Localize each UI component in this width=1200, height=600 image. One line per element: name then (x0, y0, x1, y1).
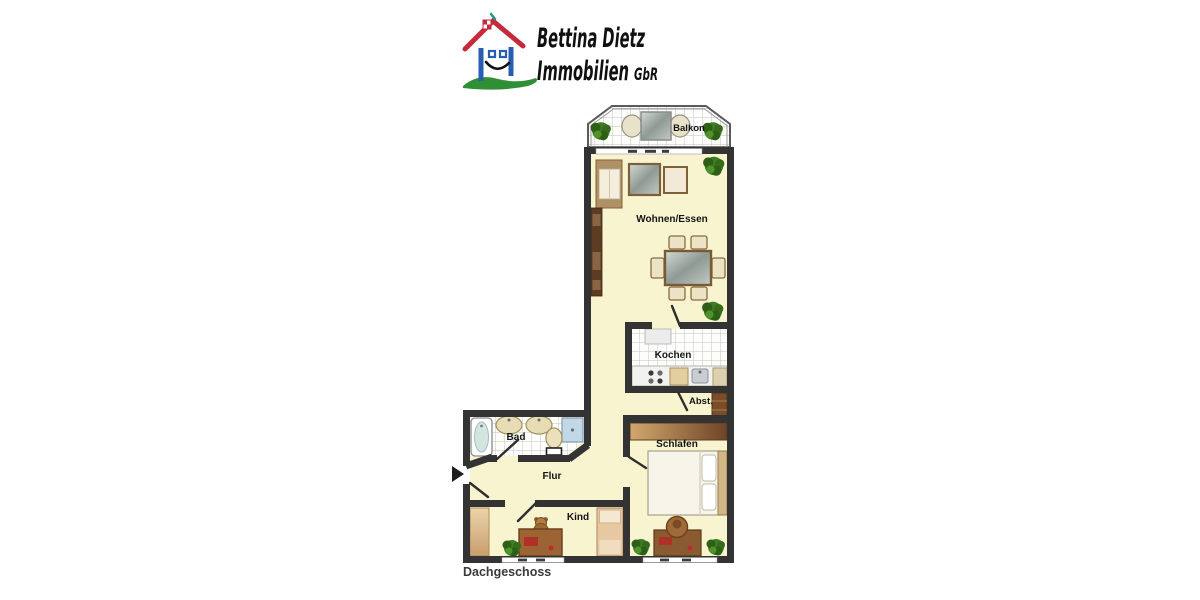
kids-wardrobe (470, 508, 489, 556)
kitchen-unit (713, 368, 727, 386)
balcony-table (641, 112, 671, 140)
dining-chair (691, 287, 707, 300)
shower (562, 418, 583, 442)
kitchen-cabinet (645, 329, 671, 344)
kids-bed (597, 508, 623, 556)
toy-chest (519, 529, 562, 556)
room-label-schlafen: Schlafen (656, 439, 698, 450)
floor-title: Dachgeschoss (463, 565, 551, 579)
pillow (702, 484, 716, 510)
dining-chair (669, 236, 685, 249)
room-label-wohnen-essen: Wohnen/Essen (636, 214, 708, 225)
room-label-kind: Kind (567, 512, 589, 523)
logo-line1: Bettina Dietz (537, 23, 645, 54)
double-bed (648, 451, 727, 515)
room-label-bad: Bad (507, 432, 526, 443)
dining-chair (691, 236, 707, 249)
logo-line2: Immobilien (537, 56, 629, 87)
window (502, 558, 564, 563)
pillow (702, 455, 716, 481)
dining-chair (651, 258, 664, 278)
headboard (718, 451, 727, 515)
floorplan-canvas: Bettina Dietz Immobilien GbR Balkon (0, 0, 1200, 600)
shelf-unit (591, 208, 602, 296)
entrance-arrow-icon (452, 466, 464, 482)
storage-shelf (712, 393, 727, 418)
dining-table (665, 251, 711, 285)
room-label-abstellraum: Abst. (689, 396, 713, 407)
room-label-balkon: Balkon (673, 123, 705, 134)
kitchen-unit (670, 368, 688, 385)
balcony: Balkon (588, 106, 730, 147)
coffee-table (629, 164, 660, 195)
room-label-kochen: Kochen (655, 350, 692, 361)
balcony-chair (622, 115, 642, 137)
sofa (596, 160, 622, 208)
dining-chair (669, 287, 685, 300)
sink-icon (692, 369, 708, 383)
window (643, 558, 717, 563)
toilet (546, 428, 562, 455)
chimney-icon (483, 20, 491, 29)
dining-chair (712, 258, 725, 278)
logo: Bettina Dietz Immobilien GbR (463, 14, 658, 90)
window (596, 149, 702, 155)
logo-house-icon (463, 14, 537, 90)
room-label-flur: Flur (543, 471, 562, 482)
svg-text:Immobilien GbR: Immobilien GbR (537, 56, 658, 87)
bathtub (471, 418, 492, 456)
wardrobe (630, 423, 727, 440)
side-table (664, 167, 687, 193)
logo-suffix: GbR (634, 65, 658, 85)
floorplan-page: Bettina Dietz Immobilien GbR Balkon (0, 0, 1200, 600)
